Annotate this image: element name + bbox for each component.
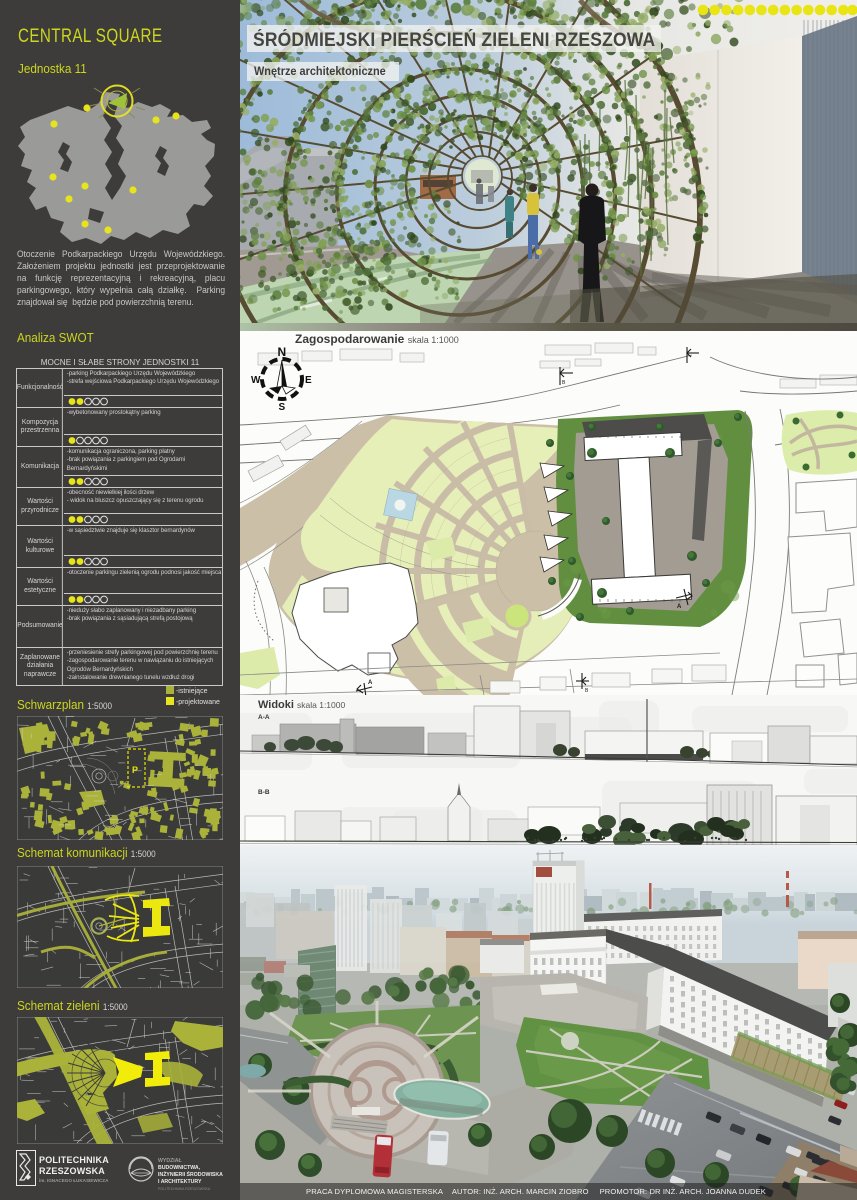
svg-text:WYDZIAŁ: WYDZIAŁ [158, 1158, 182, 1164]
svg-text:A: A [677, 604, 682, 610]
svg-text:I ARCHITEKTURY: I ARCHITEKTURY [158, 1179, 202, 1185]
svg-text:E: E [305, 375, 312, 386]
svg-text:im. IGNACEGO ŁUKASIEWICZA: im. IGNACEGO ŁUKASIEWICZA [39, 1178, 109, 1183]
svg-text:A: A [368, 680, 373, 686]
svg-text:S: S [279, 402, 286, 413]
svg-text:POLITECHNIKA RZESZOWSKA: POLITECHNIKA RZESZOWSKA [158, 1187, 211, 1191]
svg-text:N: N [278, 345, 287, 359]
svg-text:P: P [132, 765, 138, 775]
svg-text:INŻYNIERII ŚRODOWISKA: INŻYNIERII ŚRODOWISKA [158, 1171, 223, 1178]
svg-text:POLITECHNIKA: POLITECHNIKA [39, 1155, 109, 1165]
svg-text:BUDOWNICTWA,: BUDOWNICTWA, [158, 1165, 201, 1171]
svg-text:RZESZOWSKA: RZESZOWSKA [39, 1166, 105, 1176]
svg-text:W: W [251, 375, 261, 386]
